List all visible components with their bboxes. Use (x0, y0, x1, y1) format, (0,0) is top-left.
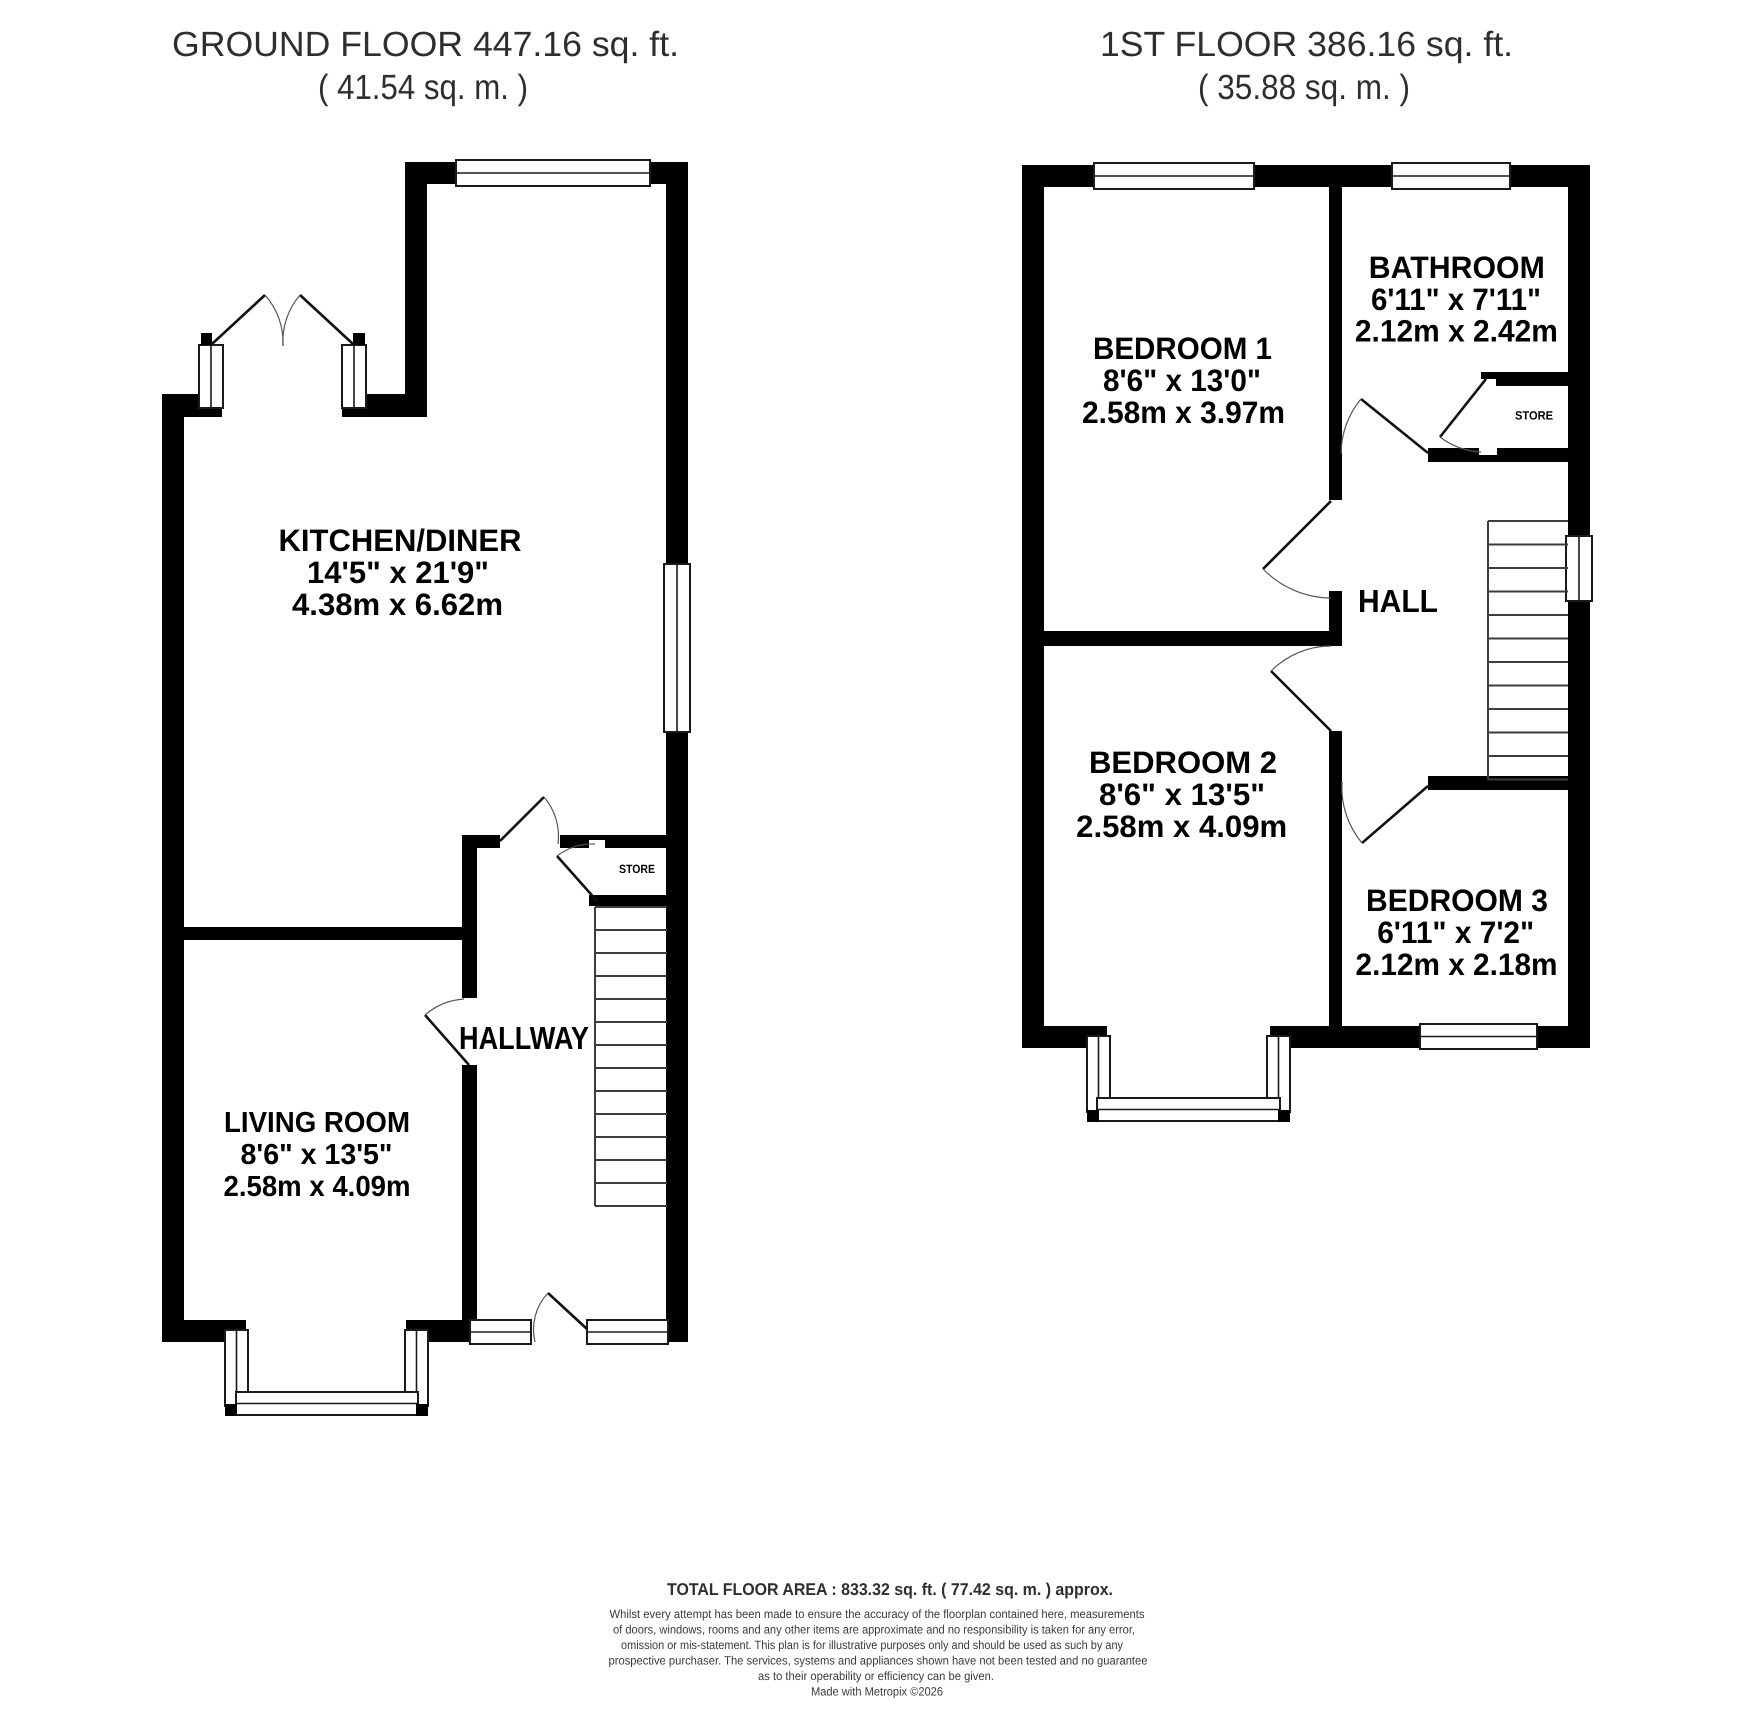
svg-text:Made with Metropix ©2026: Made with Metropix ©2026 (811, 1685, 943, 1699)
svg-text:HALLWAY: HALLWAY (459, 1020, 589, 1056)
svg-text:STORE: STORE (1515, 409, 1553, 423)
svg-text:HALL: HALL (1358, 583, 1438, 619)
svg-text:BEDROOM 2: BEDROOM 2 (1089, 745, 1277, 780)
svg-text:of doors, windows, rooms and a: of doors, windows, rooms and any other i… (613, 1623, 1135, 1637)
svg-text:BATHROOM: BATHROOM (1369, 250, 1545, 285)
svg-text:KITCHEN/DINER: KITCHEN/DINER (279, 523, 522, 558)
svg-text:6'11" x 7'11": 6'11" x 7'11" (1371, 282, 1541, 317)
svg-text:( 41.54 sq. m. ): ( 41.54 sq. m. ) (318, 68, 528, 107)
svg-text:2.12m x 2.42m: 2.12m x 2.42m (1355, 314, 1558, 349)
svg-text:14'5" x 21'9": 14'5" x 21'9" (307, 555, 489, 590)
svg-text:TOTAL FLOOR AREA : 833.32 sq.: TOTAL FLOOR AREA : 833.32 sq. ft. ( 77.4… (667, 1580, 1113, 1599)
svg-text:GROUND FLOOR 447.16 sq. ft.: GROUND FLOOR 447.16 sq. ft. (172, 25, 679, 64)
svg-text:1ST FLOOR 386.16 sq. ft.: 1ST FLOOR 386.16 sq. ft. (1100, 25, 1513, 64)
svg-text:4.38m x 6.62m: 4.38m x 6.62m (292, 587, 503, 622)
svg-text:2.58m x 4.09m: 2.58m x 4.09m (1076, 809, 1287, 844)
svg-text:BEDROOM 3: BEDROOM 3 (1366, 883, 1548, 918)
svg-text:2.58m x 3.97m: 2.58m x 3.97m (1082, 395, 1285, 430)
svg-text:2.12m x 2.18m: 2.12m x 2.18m (1356, 947, 1558, 982)
svg-text:BEDROOM 1: BEDROOM 1 (1093, 331, 1272, 366)
svg-text:prospective purchaser. The ser: prospective purchaser. The services, sys… (609, 1654, 1148, 1668)
svg-text:( 35.88 sq. m. ): ( 35.88 sq. m. ) (1198, 68, 1410, 107)
svg-text:8'6" x 13'0": 8'6" x 13'0" (1103, 363, 1261, 398)
svg-text:as to their operability or eff: as to their operability or efficiency ca… (758, 1669, 994, 1683)
svg-text:8'6" x 13'5": 8'6" x 13'5" (241, 1139, 393, 1171)
svg-text:8'6" x 13'5": 8'6" x 13'5" (1099, 777, 1265, 812)
svg-text:omission or mis-statement. Thi: omission or mis-statement. This plan is … (621, 1638, 1123, 1652)
svg-text:2.58m x 4.09m: 2.58m x 4.09m (224, 1171, 411, 1203)
svg-text:LIVING ROOM: LIVING ROOM (224, 1107, 410, 1139)
svg-text:STORE: STORE (619, 862, 655, 876)
svg-text:Whilst every attempt has been: Whilst every attempt has been made to en… (610, 1607, 1145, 1621)
svg-text:6'11" x 7'2": 6'11" x 7'2" (1377, 915, 1534, 950)
